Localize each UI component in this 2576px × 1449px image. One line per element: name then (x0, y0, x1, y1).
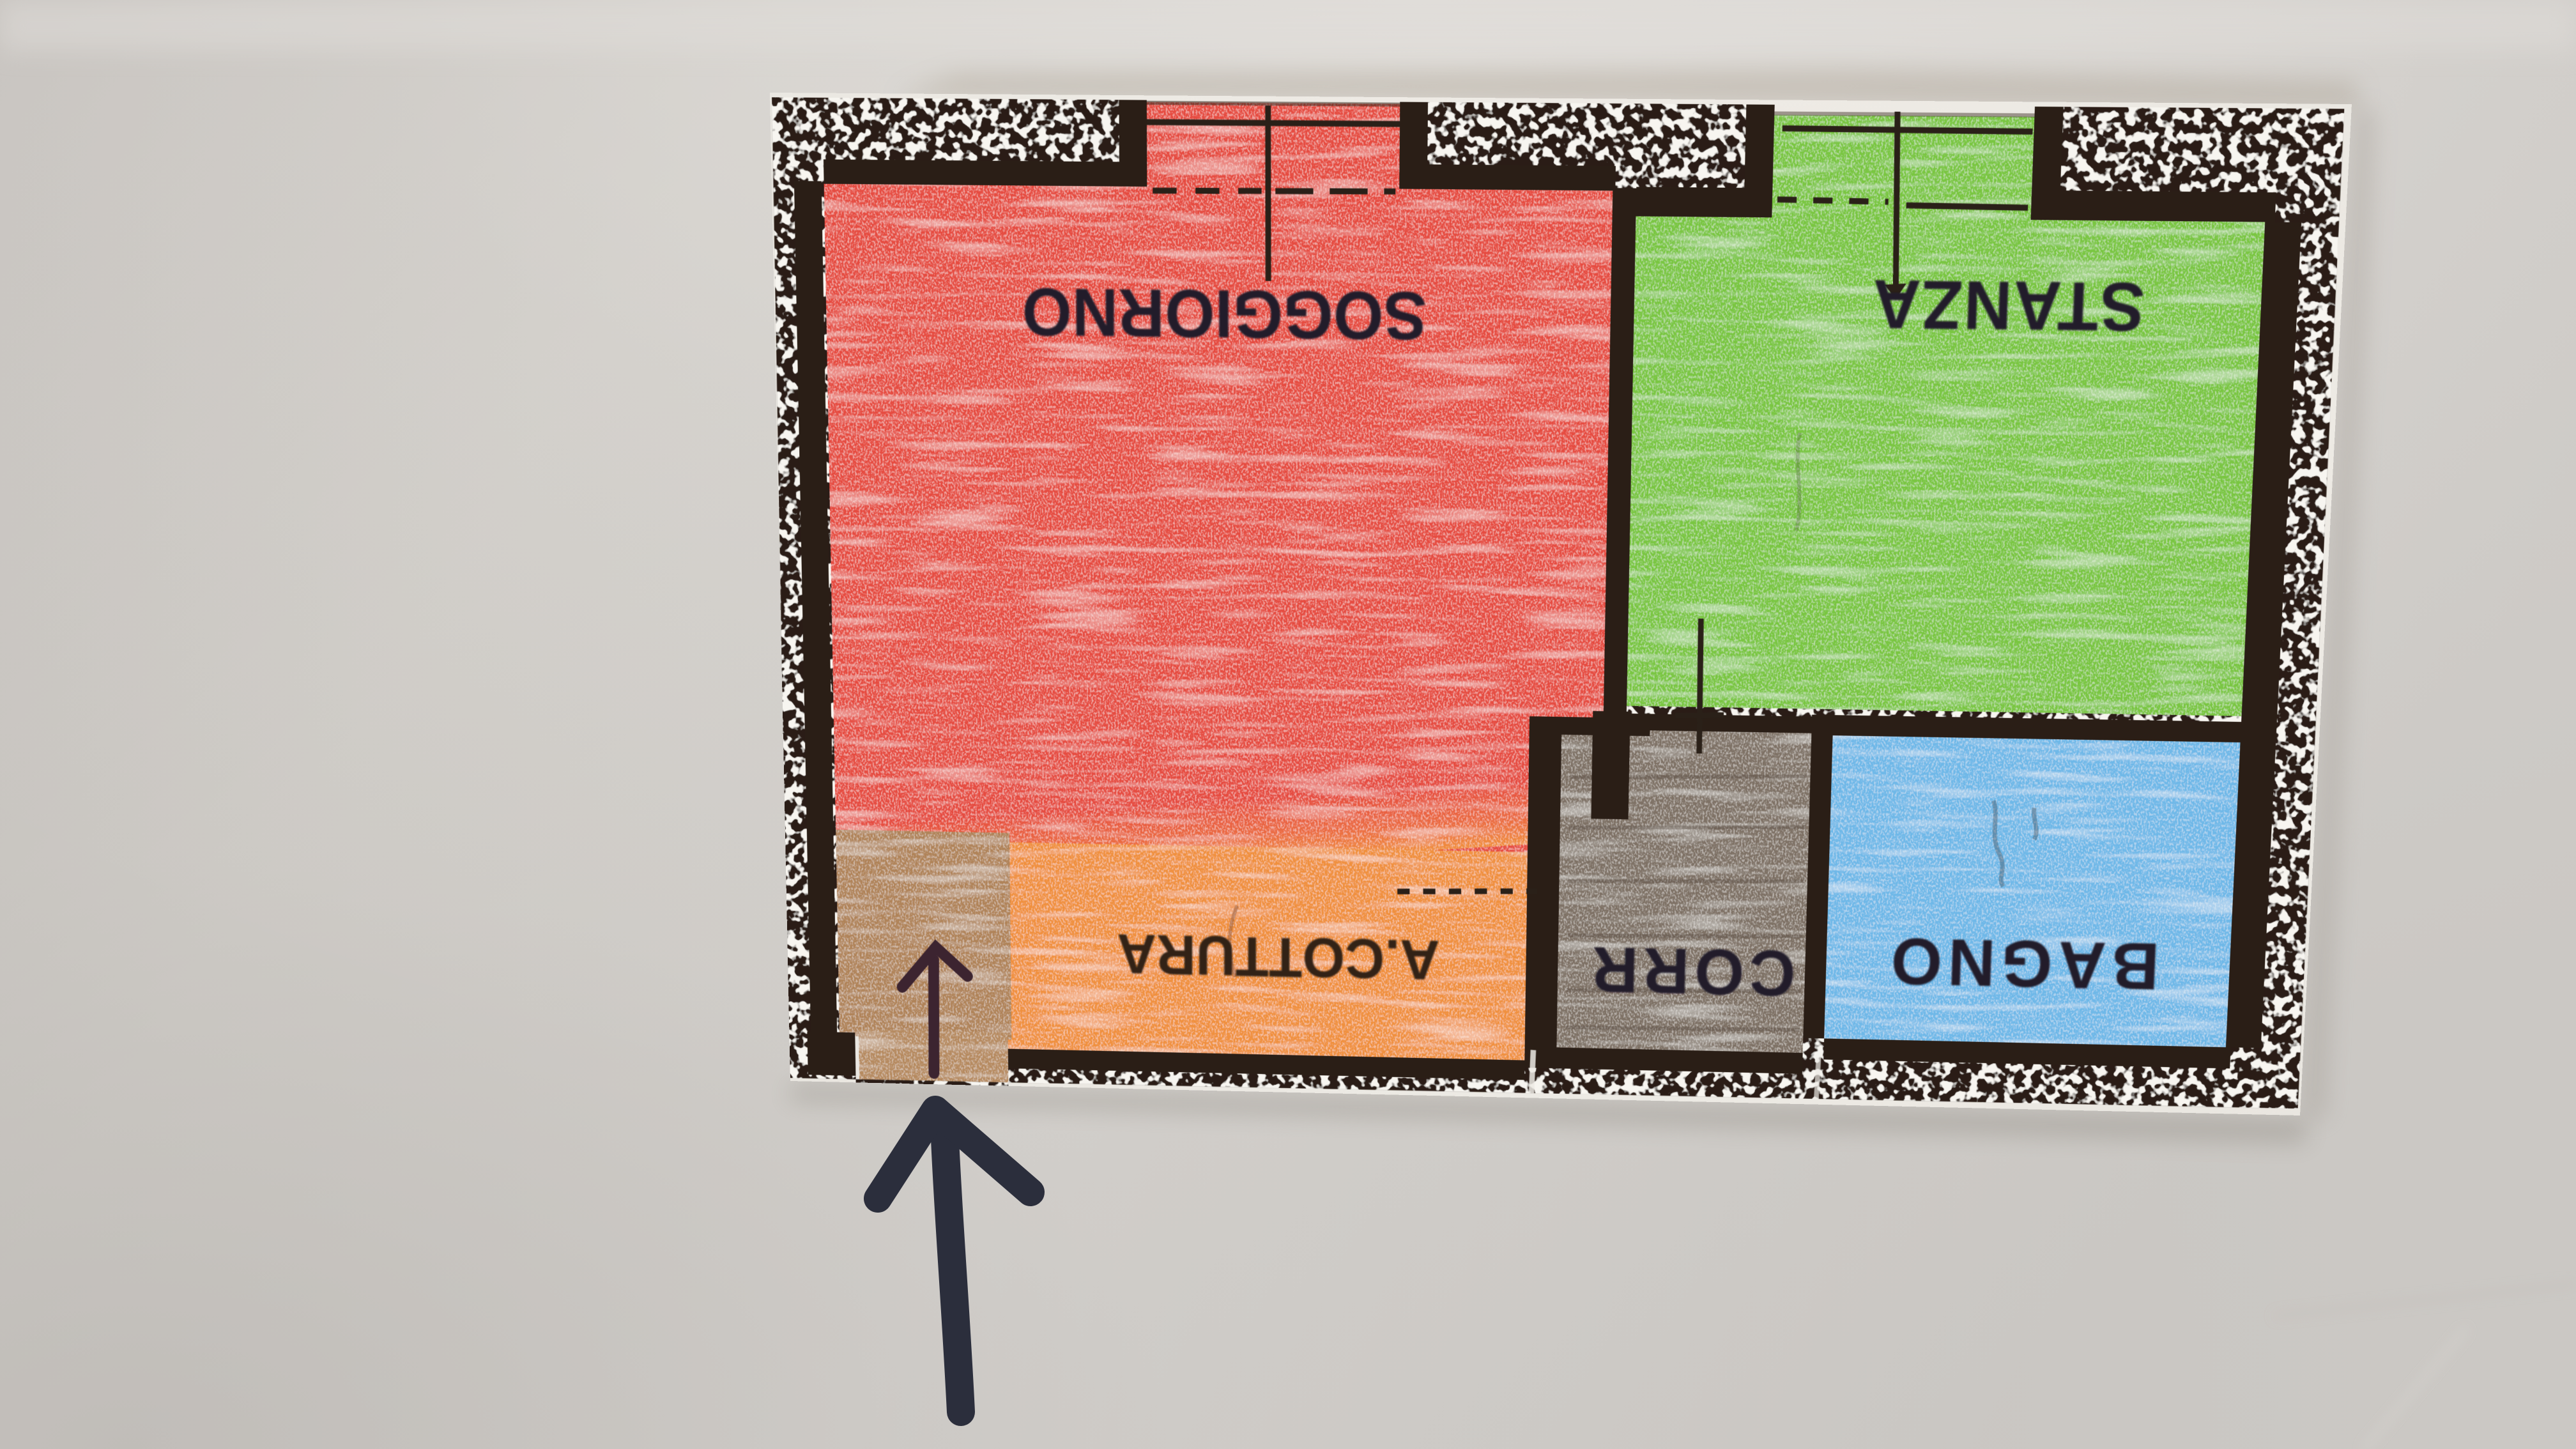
svg-text:A.COTTURA: A.COTTURA (1117, 922, 1440, 991)
svg-text:STANZA: STANZA (1870, 265, 2146, 346)
svg-text:SOGGIORNO: SOGGIORNO (1022, 274, 1427, 354)
svg-text:CORR: CORR (1586, 933, 1797, 1009)
svg-text:BAGNO: BAGNO (1884, 924, 2161, 1004)
